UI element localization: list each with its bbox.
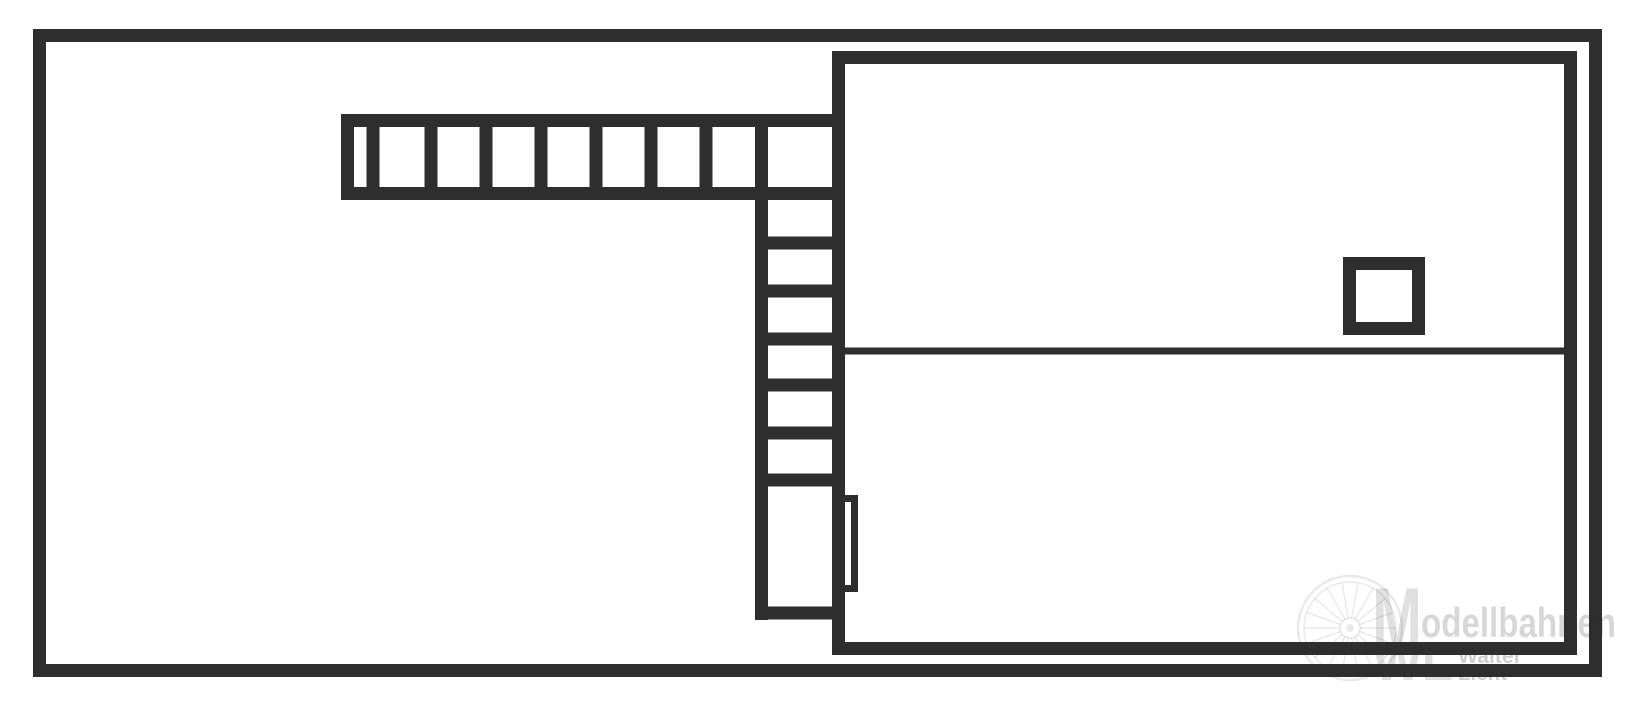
watermark-owner-last-name: Licht: [1458, 663, 1507, 685]
side-ladder-rung: [755, 333, 845, 346]
top-ladder-rung: [535, 114, 548, 200]
side-ladder-rung: [755, 427, 845, 440]
top-ladder-rung: [700, 114, 713, 200]
top-ladder-rung: [367, 114, 380, 200]
partition-line: [845, 348, 1570, 355]
wheel-spoke: [1307, 631, 1341, 643]
floor-plan-drawing: M odellbahnen WL Walter Licht: [0, 0, 1636, 701]
side-ladder-rung: [755, 607, 845, 620]
side-ladder-rung: [755, 474, 845, 487]
top-ladder-rung: [425, 114, 438, 200]
wheel-spoke: [1355, 588, 1373, 619]
wheel-spoke: [1352, 583, 1358, 618]
wheel-spoke: [1315, 598, 1343, 621]
side-ladder-rung: [755, 237, 845, 250]
wheel-spoke: [1307, 612, 1341, 624]
wheel-axle: [1346, 624, 1354, 632]
door-niche: [842, 499, 855, 589]
small-square: [1350, 264, 1419, 329]
side-ladder-rail: [755, 114, 768, 620]
side-ladder-rung: [755, 379, 845, 392]
wheel-spoke: [1342, 583, 1348, 618]
top-ladder-rung: [480, 114, 493, 200]
product-line-drawing: M odellbahnen WL Walter Licht: [0, 0, 1636, 701]
top-ladder-rung: [645, 114, 658, 200]
plan-shapes: [40, 36, 1596, 671]
side-ladder-rung: [755, 285, 845, 298]
watermark-monogram-wl: WL: [1373, 634, 1453, 691]
wheel-spoke: [1327, 588, 1345, 619]
top-ladder-rung: [590, 114, 603, 200]
